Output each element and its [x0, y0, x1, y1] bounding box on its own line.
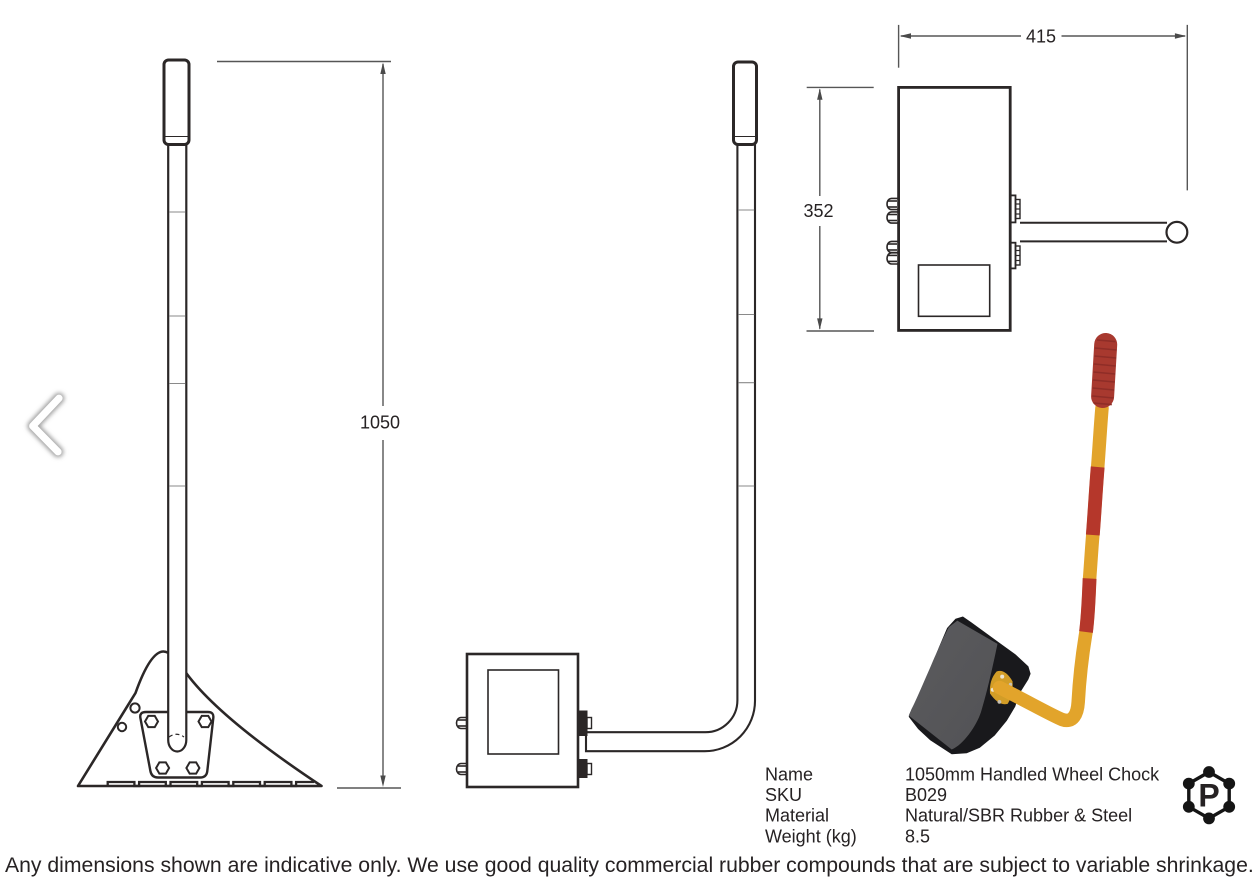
svg-text:1050mm Handled Wheel Chock: 1050mm Handled Wheel Chock: [905, 765, 1160, 785]
svg-text:8.5: 8.5: [905, 826, 930, 846]
svg-text:Name: Name: [765, 765, 813, 785]
svg-text:1050: 1050: [360, 413, 400, 433]
svg-text:Material: Material: [765, 806, 829, 826]
svg-text:Weight (kg): Weight (kg): [765, 826, 857, 846]
svg-text:352: 352: [803, 201, 833, 221]
svg-text:P: P: [1198, 778, 1219, 814]
svg-text:SKU: SKU: [765, 785, 802, 805]
svg-text:B029: B029: [905, 785, 947, 805]
svg-text:Natural/SBR Rubber & Steel: Natural/SBR Rubber & Steel: [905, 806, 1132, 826]
svg-text:Any dimensions shown are indic: Any dimensions shown are indicative only…: [5, 854, 1254, 877]
svg-text:415: 415: [1026, 26, 1056, 46]
